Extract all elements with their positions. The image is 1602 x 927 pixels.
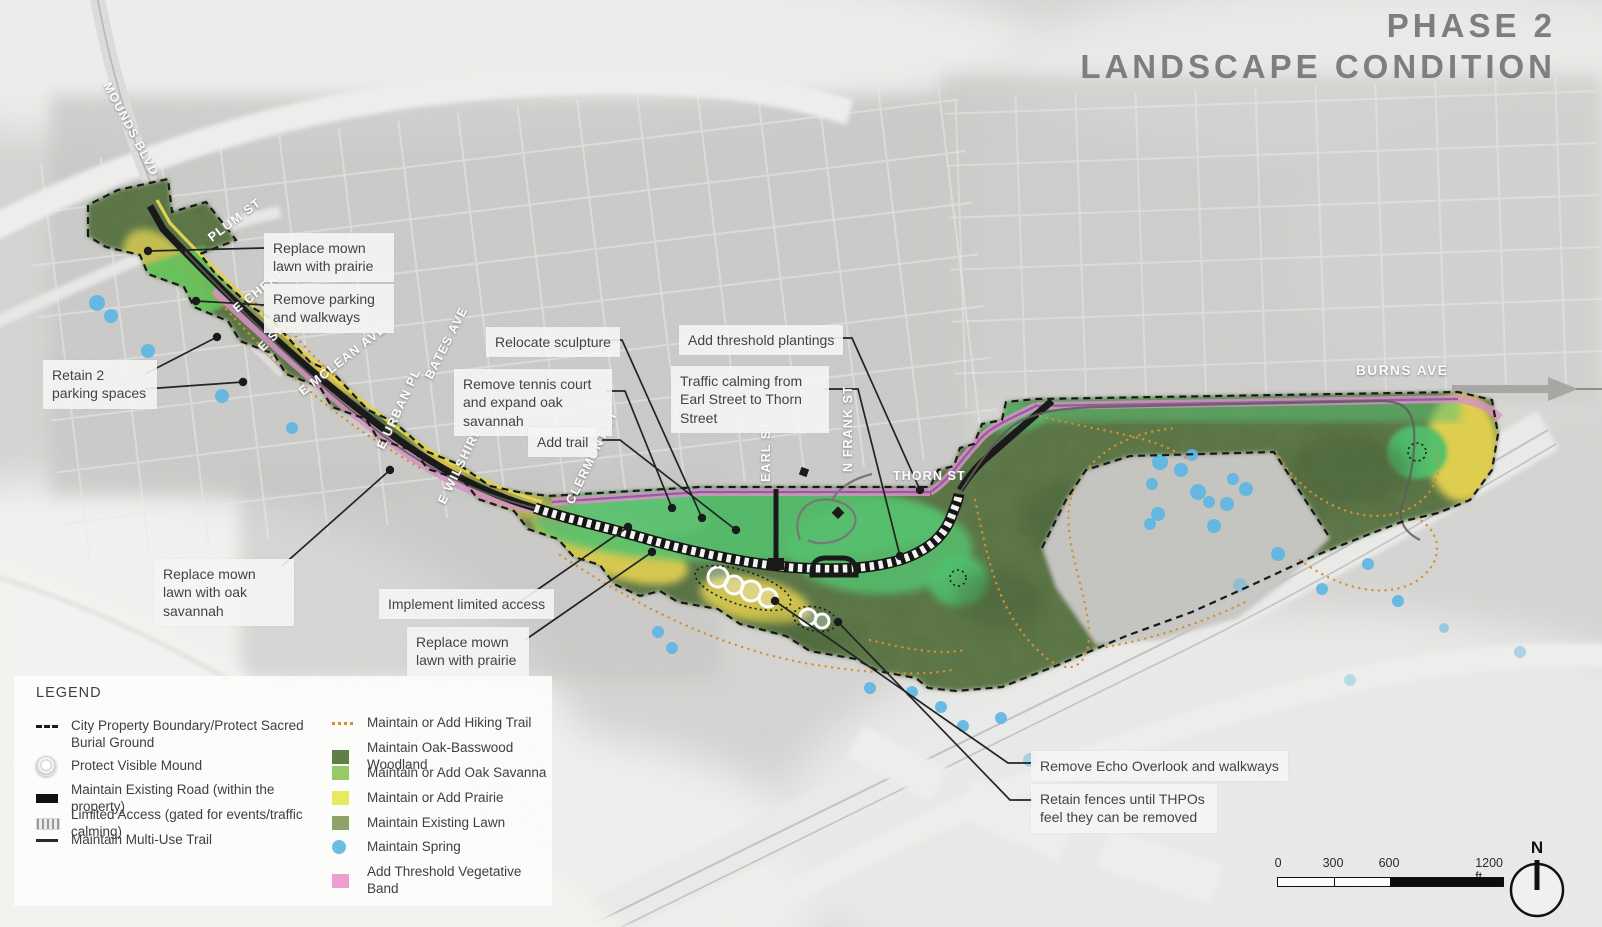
north-arrow-graphic <box>1504 856 1570 920</box>
legend-item-prairie: Maintain or Add Prairie <box>332 790 504 807</box>
legend-item-label: Protect Visible Mound <box>71 758 202 775</box>
savanna-swatch <box>332 766 349 780</box>
legend-header: LEGEND <box>36 685 102 701</box>
title-line-1: PHASE 2 <box>1080 6 1556 47</box>
scale-tick-0: 0 <box>1275 856 1282 870</box>
callout-add-threshold-plantings: Add threshold plantings <box>679 325 843 355</box>
scale-tick-300: 300 <box>1323 856 1344 870</box>
callout-implement-limited-access: Implement limited access <box>379 589 554 619</box>
prairie-swatch <box>332 791 349 805</box>
legend-item-label: Maintain Existing Lawn <box>367 815 505 832</box>
title-line-2: LANDSCAPE CONDITION <box>1080 47 1556 88</box>
legend-item-label: Maintain Spring <box>367 839 461 856</box>
legend-item-label: City Property Boundary/Protect Sacred Bu… <box>71 718 333 752</box>
boundary-dash-symbol <box>36 725 58 728</box>
legend-item-label: Maintain or Add Oak Savanna <box>367 765 546 782</box>
north-label: N <box>1504 838 1570 858</box>
scale-bar-graphic <box>1277 877 1504 887</box>
road-bar-symbol <box>36 794 58 803</box>
legend-item-label: Maintain or Add Hiking Trail <box>367 715 531 732</box>
legend-item-existing-lawn: Maintain Existing Lawn <box>332 815 505 832</box>
legend-item-label: Add Threshold Vegetative Band <box>367 864 547 898</box>
callout-replace-mown-lawn-prairie-mid: Replace mown lawn with prairie <box>407 627 529 676</box>
north-arrow: N <box>1504 838 1570 925</box>
callout-remove-parking-walkways: Remove parking and walkways <box>264 284 394 333</box>
scale-tick-600: 600 <box>1379 856 1400 870</box>
legend-item-label: Maintain or Add Prairie <box>367 790 504 807</box>
hiking-trail-dots-symbol <box>332 722 354 725</box>
callout-retain-fences-thpos: Retain fences until THPOs feel they can … <box>1031 784 1217 833</box>
legend-item-mound: Protect Visible Mound <box>36 756 202 776</box>
page-title: PHASE 2 LANDSCAPE CONDITION <box>1080 6 1556 88</box>
mound-symbol <box>36 756 56 776</box>
trail-line-symbol <box>36 839 58 842</box>
callout-add-trail: Add trail <box>528 427 597 457</box>
callout-traffic-calming: Traffic calming from Earl Street to Thor… <box>671 366 829 433</box>
legend-item-multi-use-trail: Maintain Multi-Use Trail <box>36 832 212 849</box>
callout-replace-mown-lawn-prairie-nw: Replace mown lawn with prairie <box>264 233 394 282</box>
callout-replace-mown-lawn-oak-savannah: Replace mown lawn with oak savannah <box>154 559 294 626</box>
lawn-swatch <box>332 816 349 830</box>
legend-item-spring: Maintain Spring <box>332 839 461 856</box>
legend-item-hiking-trail: Maintain or Add Hiking Trail <box>332 715 531 732</box>
phase2-landscape-plan: MOUNDS BLVD PLUM ST E CHERRY E SHORE E M… <box>0 0 1602 927</box>
callout-relocate-sculpture: Relocate sculpture <box>486 327 620 357</box>
legend-item-label: Maintain Multi-Use Trail <box>71 832 212 849</box>
legend-item-boundary: City Property Boundary/Protect Sacred Bu… <box>36 718 333 752</box>
threshold-band-swatch <box>332 874 349 888</box>
callout-retain-2-parking-spaces: Retain 2 parking spaces <box>43 360 157 409</box>
spring-circle-symbol <box>332 840 346 854</box>
woodland-swatch <box>332 750 349 764</box>
callout-remove-echo-overlook: Remove Echo Overlook and walkways <box>1031 751 1288 781</box>
legend-item-threshold-band: Add Threshold Vegetative Band <box>332 864 547 898</box>
hatched-bar-symbol <box>36 818 60 830</box>
legend-item-oak-savanna: Maintain or Add Oak Savanna <box>332 765 546 782</box>
legend-panel: LEGEND City Property Boundary/Protect Sa… <box>14 676 552 906</box>
